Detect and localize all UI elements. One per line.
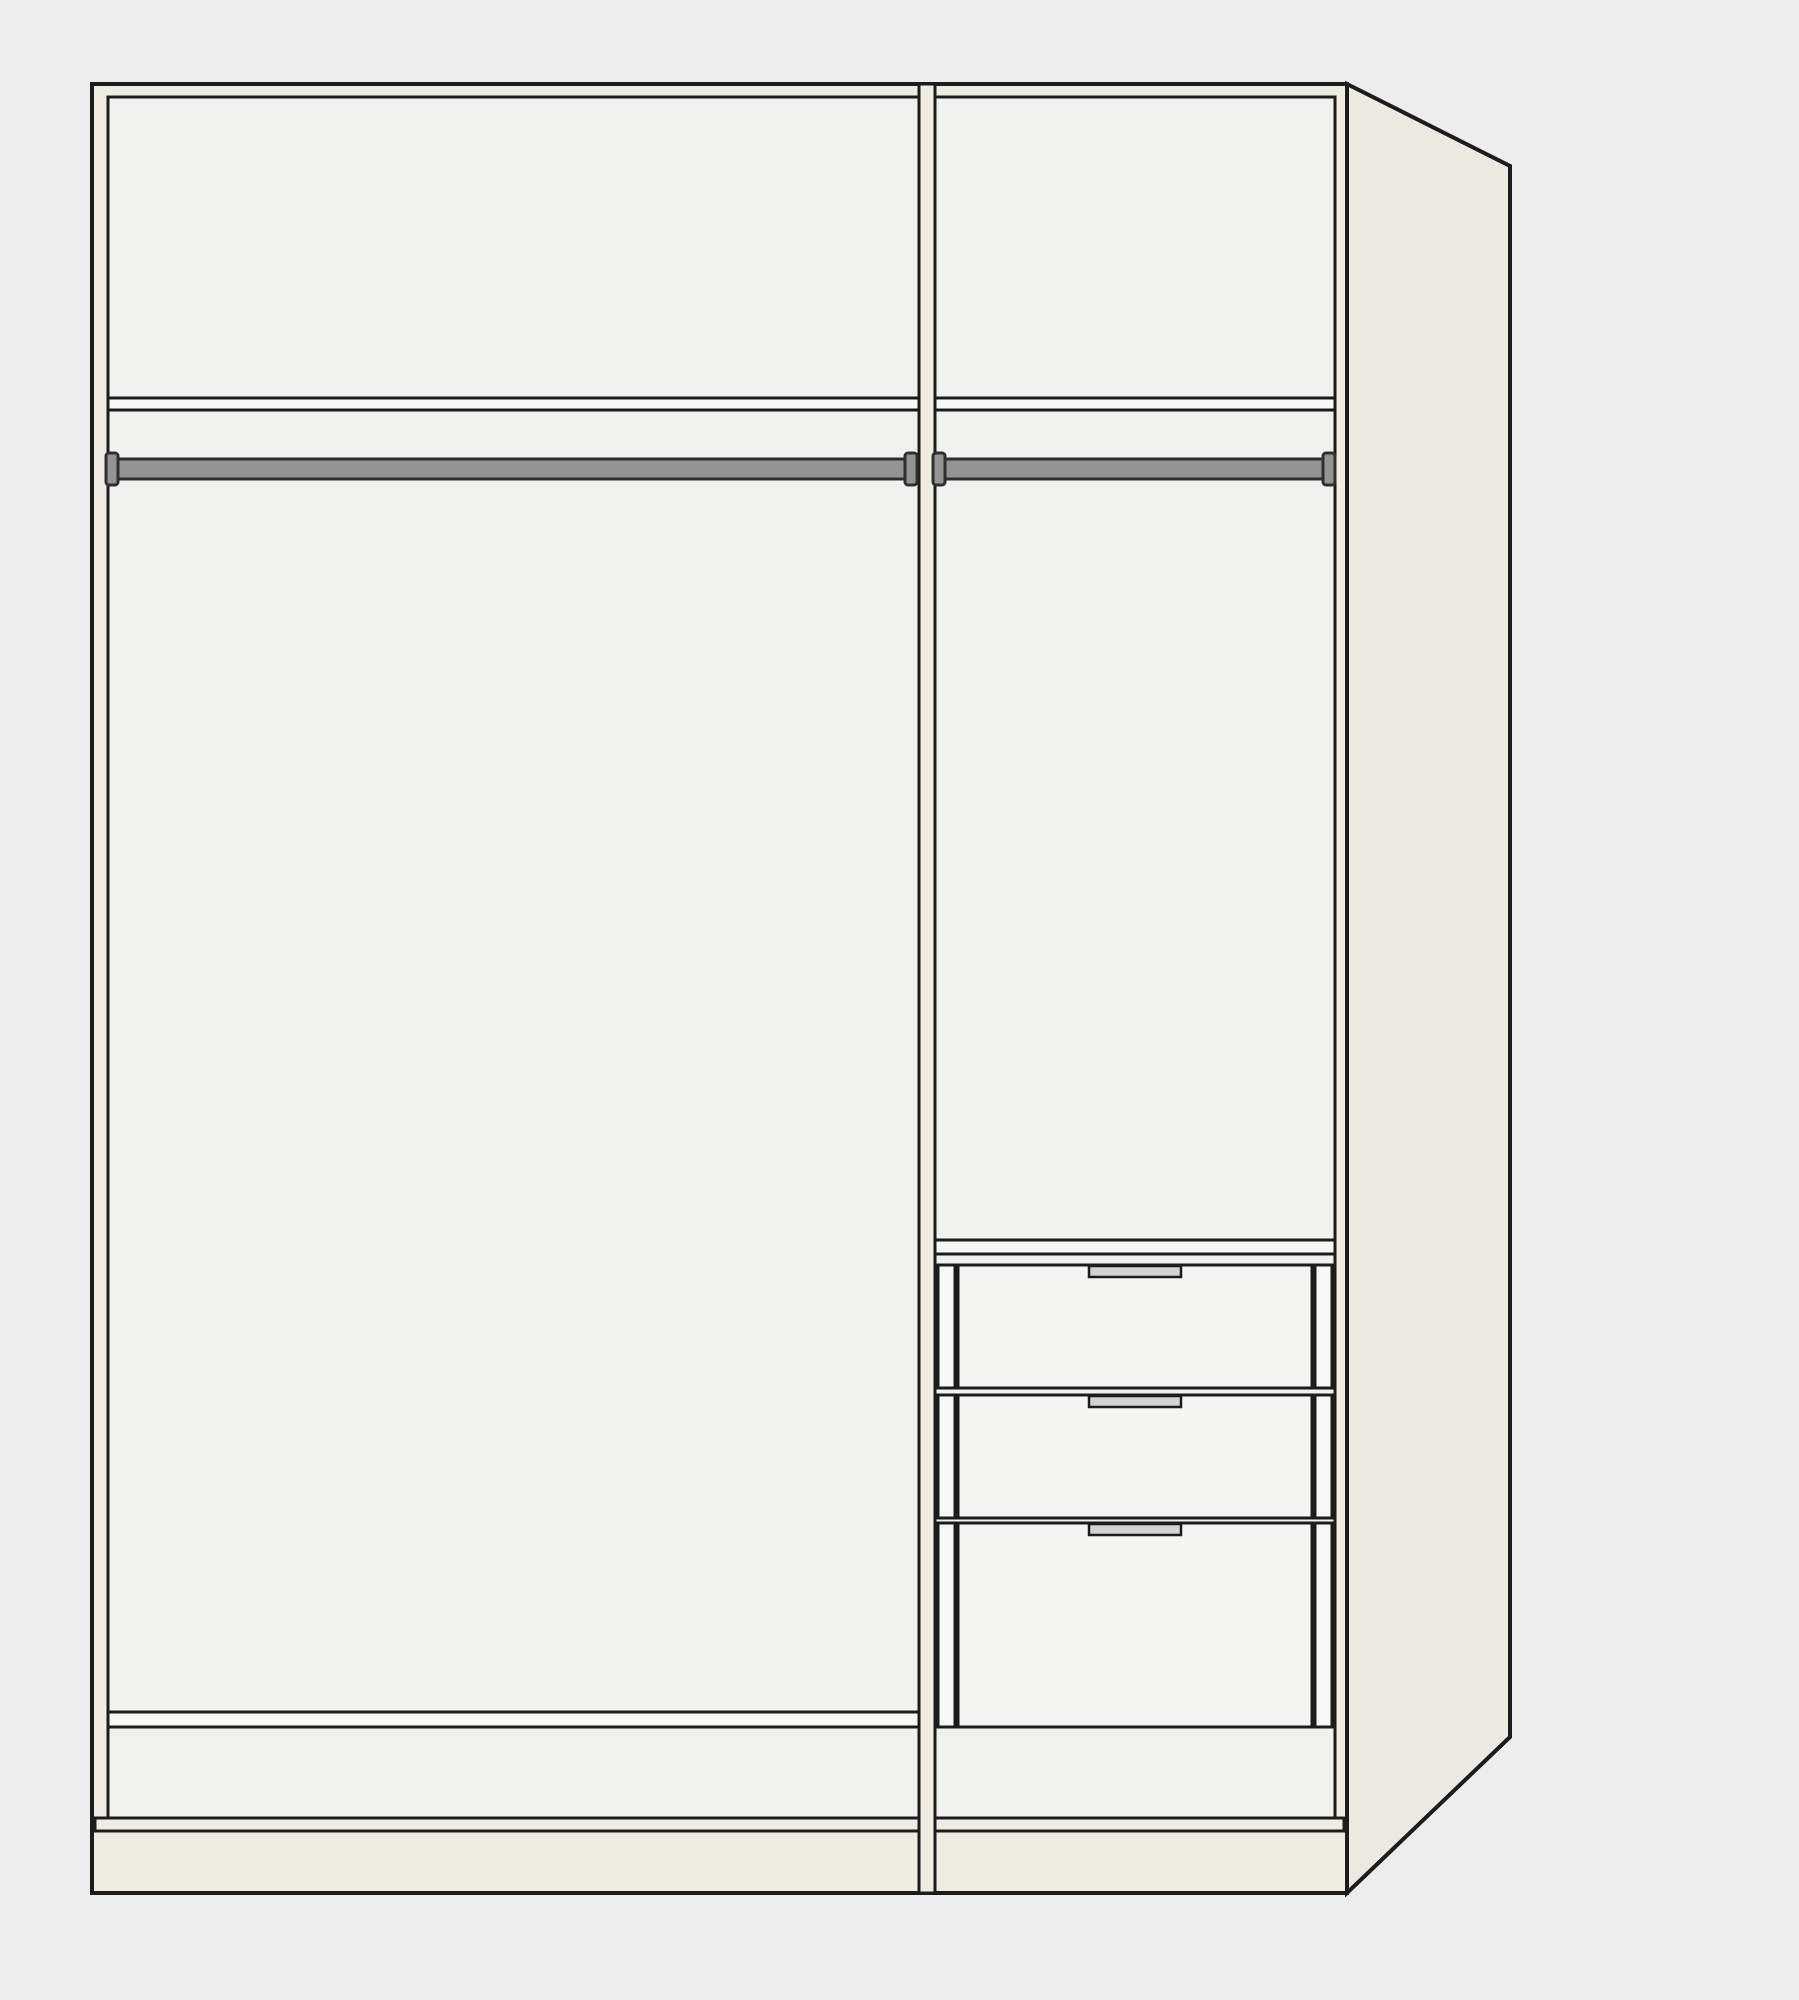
left-clothes-rail[interactable] bbox=[106, 453, 917, 485]
drawer-handle[interactable] bbox=[1089, 1266, 1181, 1277]
drawer-runner-right bbox=[1315, 1395, 1332, 1518]
drawer-row-1[interactable] bbox=[938, 1265, 1332, 1388]
rail-end-cap-left bbox=[933, 453, 945, 485]
rail-bar[interactable] bbox=[939, 459, 1329, 479]
rail-end-cap-left bbox=[106, 453, 118, 485]
left-top-shelf[interactable] bbox=[108, 398, 919, 410]
drawer-runner-right bbox=[1315, 1523, 1332, 1727]
wardrobe-drawing bbox=[92, 84, 1510, 1893]
drawer-front[interactable] bbox=[958, 1395, 1312, 1518]
drawer-unit[interactable] bbox=[935, 1240, 1335, 1727]
bottom-panel bbox=[95, 1818, 1344, 1831]
right-top-shelf[interactable] bbox=[935, 398, 1335, 410]
drawer-front[interactable] bbox=[958, 1265, 1312, 1388]
wardrobe-planner-canvas bbox=[0, 0, 1799, 2000]
drawer-unit-top-rail bbox=[935, 1240, 1335, 1254]
drawer-row-3[interactable] bbox=[938, 1523, 1332, 1727]
drawer-runner-left bbox=[938, 1395, 955, 1518]
rail-end-cap-right bbox=[1323, 453, 1335, 485]
drawer-handle[interactable] bbox=[1089, 1396, 1181, 1407]
rail-bar[interactable] bbox=[112, 459, 912, 479]
left-compartment[interactable] bbox=[108, 97, 919, 1818]
rail-end-cap-right bbox=[905, 453, 917, 485]
drawer-runner-right bbox=[1315, 1265, 1332, 1388]
center-divider bbox=[919, 84, 935, 1893]
drawer-front[interactable] bbox=[958, 1523, 1312, 1727]
right-clothes-rail[interactable] bbox=[933, 453, 1335, 485]
drawer-row-2[interactable] bbox=[938, 1395, 1332, 1518]
left-bottom-shelf[interactable] bbox=[108, 1712, 919, 1727]
drawer-runner-left bbox=[938, 1523, 955, 1727]
drawer-runner-left bbox=[938, 1265, 955, 1388]
drawer-handle[interactable] bbox=[1089, 1524, 1181, 1535]
side-panel bbox=[1347, 84, 1510, 1893]
